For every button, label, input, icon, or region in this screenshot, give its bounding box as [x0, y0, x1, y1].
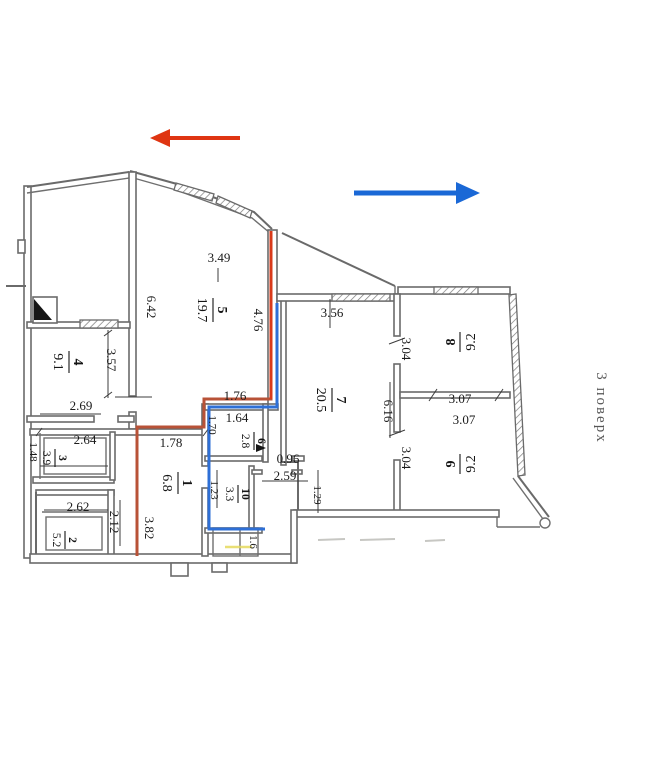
room-label-9: 9 9.2: [444, 454, 479, 474]
room-label-2: 2 5.2: [50, 531, 78, 549]
room-label-3: 3 3.9: [40, 449, 68, 467]
room-8-area: 9.2: [464, 333, 479, 351]
wall-room10-stub-a: [252, 470, 262, 474]
dim-1-23: 1.23: [208, 480, 220, 500]
blue-arrow: [354, 182, 480, 204]
room-2-number: 2: [66, 537, 78, 543]
room-5-number: 5: [214, 307, 229, 314]
red-arrow: [150, 129, 240, 147]
balcony-br-diag-inner: [513, 478, 543, 519]
wall-bottom-right: [294, 510, 499, 517]
room-1-number: 1: [179, 480, 194, 487]
balcony-br-hook: [540, 518, 550, 528]
dim-6-42: 6.42: [144, 296, 159, 319]
room-1-area: 6.8: [159, 474, 174, 492]
room-label-1: 1 6.8: [159, 472, 194, 494]
wall-room4-bottom-a: [27, 416, 94, 422]
room-label-5: 5 19.7: [194, 298, 229, 323]
blue-arrow-head: [456, 182, 480, 204]
wall-room3-right: [110, 432, 115, 480]
dim-2-69: 2.69: [70, 398, 93, 413]
dim-3-07-a: 3.07: [449, 391, 472, 406]
dim-3-07-b: 3.07: [453, 412, 476, 427]
balcony-top-diagonal: [282, 233, 395, 286]
window-room4-top: [80, 320, 118, 328]
room-label-4: 4 9.1: [50, 351, 85, 373]
dim-1-48: 1.48: [27, 442, 39, 462]
dim-1-76: 1.76: [224, 388, 247, 403]
room-3-number: 3: [56, 455, 68, 461]
wall-7-8-divider-a: [394, 294, 400, 336]
dim-3-49: 3.49: [208, 250, 231, 265]
room-4-number: 4: [70, 359, 85, 366]
wall-room6-right: [263, 404, 268, 462]
dim-3-82: 3.82: [142, 517, 157, 540]
room-6-number: 6: [255, 438, 267, 444]
room-label-7: 7 20.5: [313, 388, 348, 413]
dim-4-76: 4.76: [251, 309, 266, 332]
window-arc-1: [174, 183, 214, 201]
wall-room2-top: [36, 490, 114, 495]
wall-top-arc-inner: [130, 177, 270, 233]
room-8-number: 8: [444, 339, 459, 346]
red-arrow-head: [150, 129, 170, 147]
scanned-floor-plan-page: 5 19.7 4 9.1 3 3.9 2 5.2 1 6.8 6 2.8 10 …: [0, 0, 650, 780]
wall-center-right-connector: [291, 510, 297, 563]
wall-room3-bottom: [33, 477, 114, 483]
room-10-area: 3.3: [223, 487, 235, 502]
dim-3-57: 3.57: [104, 349, 119, 372]
wall-top-arc-outer: [130, 171, 272, 229]
window-room8-top: [434, 287, 478, 294]
room-4-area: 9.1: [50, 353, 65, 371]
dim-1-29: 1.29: [311, 485, 323, 505]
floor-number-label: 3 поверх: [593, 372, 609, 443]
wall-room7-left: [281, 297, 286, 465]
wall-room1-right-lower: [202, 488, 208, 556]
room-2-area: 5.2: [50, 533, 62, 548]
windows: [80, 183, 478, 328]
dim-1-70: 1.70: [206, 415, 218, 435]
room-7-area: 20.5: [313, 388, 328, 413]
dim-3-04-b: 3.04: [399, 447, 414, 470]
room-5-area: 19.7: [194, 298, 209, 323]
room-7-number: 7: [333, 397, 348, 404]
room-label-10: 10 3.3: [223, 485, 251, 503]
room-3-area: 3.9: [40, 451, 52, 466]
dim-0-96: 0.96: [277, 451, 300, 466]
room-6-area: 2.8: [239, 434, 251, 449]
floor-plan-svg: 5 19.7 4 9.1 3 3.9 2 5.2 1 6.8 6 2.8 10 …: [0, 0, 650, 780]
dim-3-56: 3.56: [321, 305, 344, 320]
dim-6-16: 6.16: [381, 400, 396, 423]
dim-3-04-a: 3.04: [399, 338, 414, 361]
dim-1-78: 1.78: [160, 435, 183, 450]
room-10-number: 10: [239, 488, 251, 500]
balcony-br-diag-outer: [518, 476, 549, 517]
room-9-area: 9.2: [464, 455, 479, 473]
dim-1-64: 1.64: [226, 410, 249, 425]
wall-bottom-tab-a: [171, 563, 188, 576]
wall-room4-5: [129, 172, 136, 396]
dim-2-62: 2.62: [67, 499, 90, 514]
wall-topleft-outer: [27, 172, 129, 187]
dim-2-64: 2.64: [74, 432, 97, 447]
window-room7-top: [332, 294, 390, 301]
wall-left-pier: [18, 240, 25, 253]
dim-2-59: 2.59: [274, 468, 297, 483]
dim-1-6: 1.6: [247, 535, 259, 549]
wall-room4-bottom-b: [118, 416, 134, 422]
room-label-8: 8 9.2: [444, 332, 479, 352]
dim-2-12: 2.12: [107, 511, 122, 534]
wall-right-windows: [509, 294, 525, 476]
room-9-number: 9: [444, 461, 459, 468]
wall-room6-bottom-a: [205, 456, 262, 461]
wall-bottom-tab-b: [212, 563, 227, 572]
